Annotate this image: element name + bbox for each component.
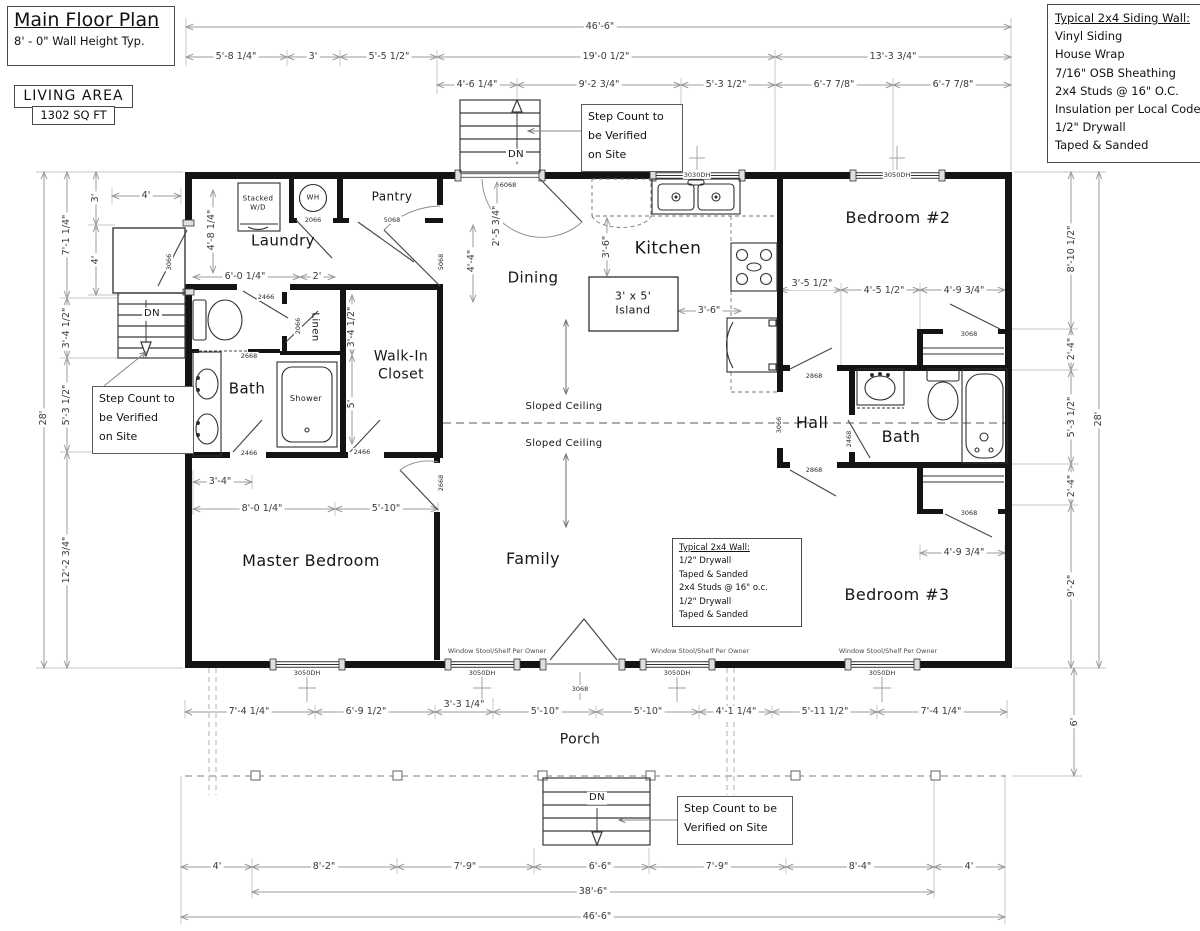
laundry-fixtures — [238, 183, 327, 231]
wall-note-lines: 1/2" Drywall Taped & Sanded 2x4 Studs @ … — [679, 555, 795, 622]
stairs-left — [113, 228, 185, 358]
windows — [183, 170, 945, 670]
bathtub — [962, 369, 1007, 463]
right-bath-fixtures — [857, 369, 1007, 463]
stairs-porch — [543, 778, 650, 845]
interior-wall-note-title: Typical 2x4 Wall: — [679, 542, 795, 555]
kitchen-fixtures — [589, 179, 777, 392]
siding-note-lines: Vinyl Siding House Wrap 7/16" OSB Sheath… — [1055, 27, 1200, 154]
vanity-right — [857, 369, 904, 408]
step-note-left: Step Count to be Verified on Site — [92, 386, 194, 454]
walls — [185, 172, 1012, 668]
doors — [158, 174, 1000, 664]
living-area-value: 1302 SQ FT — [32, 106, 115, 125]
extension-lines — [36, 18, 1106, 924]
step-note-bottom: Step Count to be Verified on Site — [677, 796, 793, 845]
interior-wall-note: Typical 2x4 Wall: 1/2" Drywall Taped & S… — [672, 538, 802, 627]
stove — [731, 243, 777, 291]
kitchen-island — [589, 277, 678, 331]
toilet-left — [193, 300, 242, 340]
siding-wall-note-title: Typical 2x4 Siding Wall: — [1055, 9, 1200, 27]
step-note-top: Step Count to be Verified on Site — [581, 104, 683, 172]
refrigerator — [727, 318, 778, 372]
counter-lines — [592, 179, 777, 392]
water-heater-circle — [300, 185, 327, 212]
page-title: Main Floor Plan — [14, 9, 168, 31]
double-vanity — [193, 352, 221, 456]
stairs-top — [460, 100, 540, 172]
window-tick-marks — [298, 146, 905, 702]
kitchen-sink — [652, 179, 740, 214]
shower-stall — [277, 362, 337, 447]
living-area-label: LIVING AREA — [14, 85, 133, 108]
left-bath-fixtures — [193, 300, 337, 456]
title-block: Main Floor Plan 8' - 0" Wall Height Typ. — [7, 6, 175, 66]
floor-plan-page: LaundryPantryKitchenDiningBedroom #2Hall… — [0, 0, 1200, 931]
wall-height-note: 8' - 0" Wall Height Typ. — [14, 34, 168, 48]
dimension-lines — [44, 27, 1099, 917]
siding-wall-note: Typical 2x4 Siding Wall: Vinyl Siding Ho… — [1047, 4, 1200, 163]
porch-outline — [185, 668, 1006, 795]
toilet-right — [927, 369, 959, 420]
